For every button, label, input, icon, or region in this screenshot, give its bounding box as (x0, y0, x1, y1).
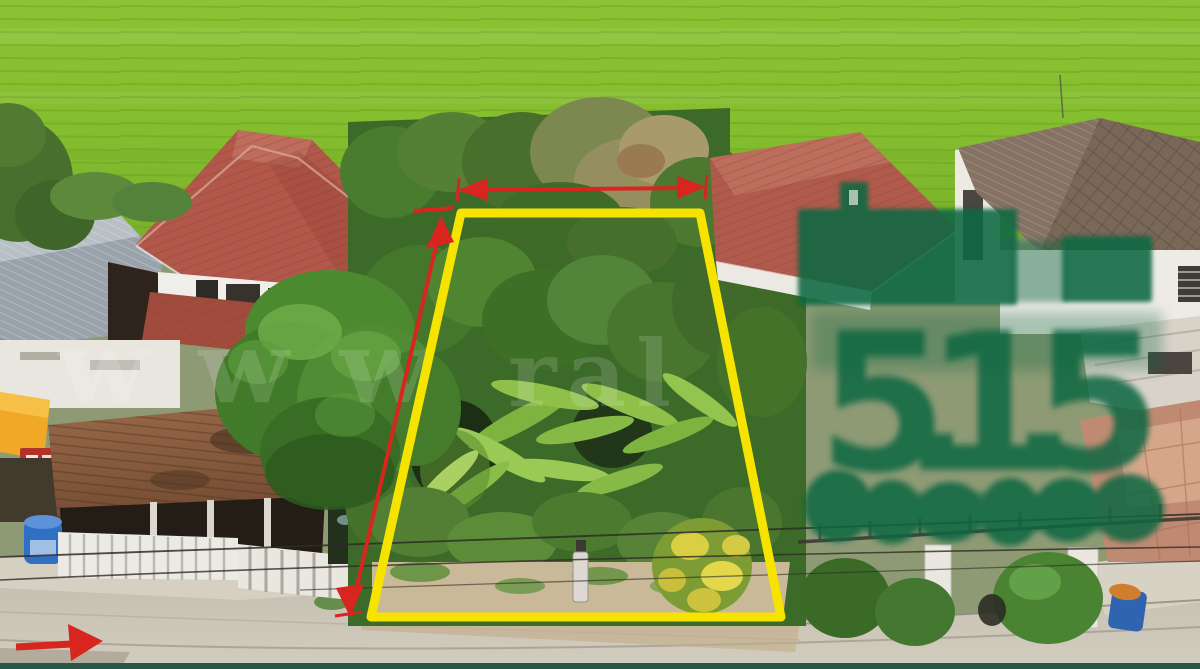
site-watermark: www ral (57, 309, 681, 428)
overlay-top-bar-left (798, 209, 1017, 305)
white-gate (58, 532, 238, 580)
aerial-photo: www ral (0, 0, 1200, 669)
footer-strip (0, 663, 1200, 669)
watermark-text-center: ral (508, 320, 681, 428)
price-overlay: 5.1.5 (798, 182, 1164, 546)
